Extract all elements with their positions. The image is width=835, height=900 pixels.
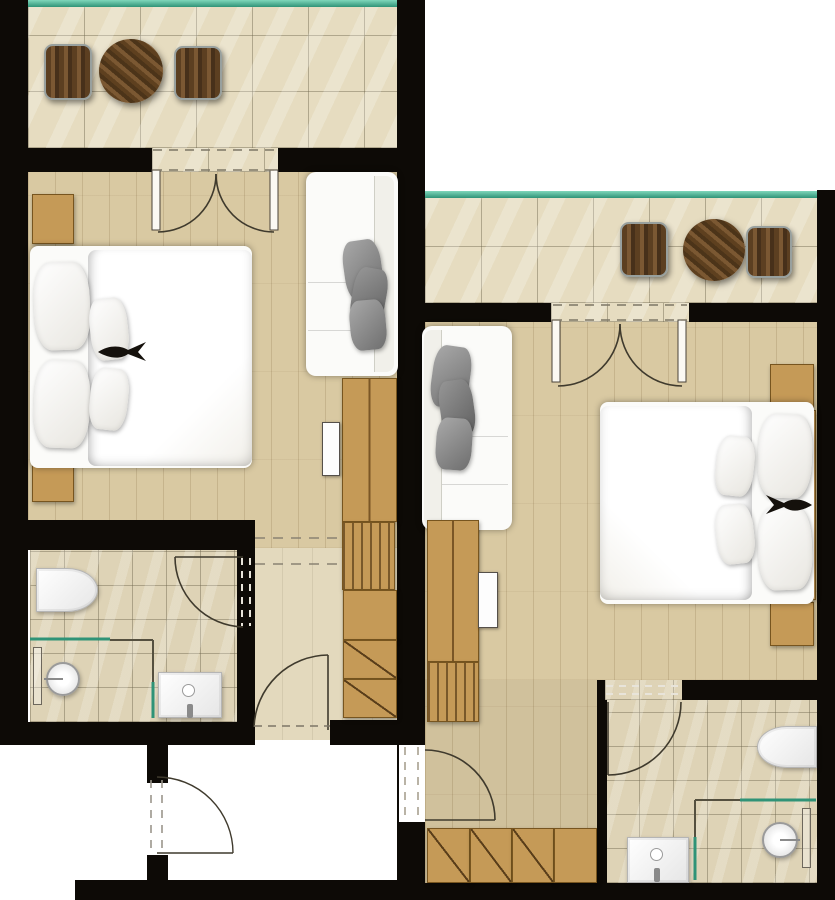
sofa-left-cushion-3 xyxy=(348,299,388,352)
washbasin-right-drain xyxy=(650,848,663,861)
console-right xyxy=(427,520,479,662)
entry-opening-right-unit xyxy=(399,745,425,822)
tv-left xyxy=(322,422,340,476)
closet-right-cell-2 xyxy=(470,828,512,883)
balcony-chair-left-2 xyxy=(174,46,222,100)
closet-left-shelf xyxy=(343,590,397,640)
wall-bathroom-left-top xyxy=(0,520,255,550)
washbasin-left-drain xyxy=(182,684,195,697)
bed-left-pillow-1 xyxy=(32,261,91,351)
wall-vestibule-stub-bottom xyxy=(147,855,168,883)
closet-right-cell-3 xyxy=(512,828,554,883)
shower-left-rail xyxy=(33,647,42,705)
washbasin-left-faucet xyxy=(187,704,193,718)
wall-bottom-left xyxy=(75,880,407,900)
bed-right-pillow-1 xyxy=(757,413,814,499)
closet-right-cell-1 xyxy=(427,828,470,883)
wall-right-outer xyxy=(817,190,835,900)
balcony-glass-railing-left xyxy=(28,0,397,7)
wall-bathroom-right-left xyxy=(597,700,607,883)
tv-right xyxy=(478,572,498,628)
closet-left-hanging-1 xyxy=(343,640,397,679)
wall-vestibule-stub-top xyxy=(147,743,168,783)
wall-bathroom-left-bottom xyxy=(0,722,255,745)
wall-bathroom-left-right xyxy=(237,550,255,722)
vestibule-door-dashes xyxy=(151,780,162,852)
sofa-right-seam-2 xyxy=(442,484,508,485)
bathroom-door-threshold-right xyxy=(605,680,682,700)
console-right-slatted-base xyxy=(427,662,479,722)
wall-left-outer xyxy=(0,0,28,745)
balcony-glass-railing-right xyxy=(425,191,817,198)
closet-left-hanging-2 xyxy=(343,679,397,718)
wall-below-closet-left xyxy=(330,720,425,745)
toilet-right xyxy=(757,726,817,768)
vestibule-door xyxy=(157,777,233,853)
sofa-right-cushion-3 xyxy=(434,417,474,471)
floor-plan-canvas xyxy=(0,0,835,900)
shower-left-head xyxy=(46,662,80,696)
wall-bottom-right xyxy=(407,883,835,900)
nightstand-right-bottom xyxy=(770,602,814,646)
balcony-table-right xyxy=(683,219,745,281)
bed-right-pillow-2 xyxy=(757,505,814,591)
closet-right-cell-4 xyxy=(554,828,597,883)
toilet-left xyxy=(36,568,98,612)
nightstand-left-top xyxy=(32,194,74,244)
luggage-rack-left xyxy=(342,522,395,590)
shower-right-head xyxy=(762,822,798,858)
balcony-chair-right-2 xyxy=(746,226,792,278)
balcony-chair-right-1 xyxy=(620,222,668,277)
wardrobe-left-upper xyxy=(342,378,397,522)
balcony-chair-left-1 xyxy=(44,44,92,100)
balcony-door-threshold-left xyxy=(152,148,278,172)
door-arc xyxy=(157,777,233,853)
bed-left-pillow-2 xyxy=(32,359,91,449)
balcony-table-left xyxy=(99,39,163,103)
shower-right-rail xyxy=(802,808,811,868)
balcony-door-threshold-right xyxy=(551,303,689,322)
washbasin-right-faucet xyxy=(654,868,660,882)
